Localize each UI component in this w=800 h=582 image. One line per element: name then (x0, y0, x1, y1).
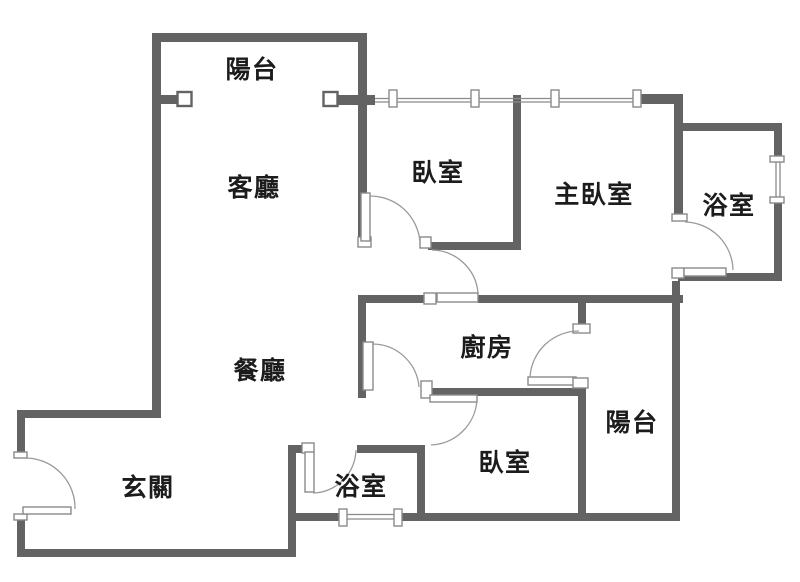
railing-post-icon (178, 92, 192, 106)
door-leaf-icon (363, 342, 373, 390)
door-swing-arc-icon (372, 344, 419, 387)
window-bathroom-bottom (339, 509, 402, 526)
door-leaf-icon (305, 452, 314, 492)
window-mullion-icon (770, 197, 784, 203)
door-swing-arc-icon (432, 250, 478, 293)
door-swing-arc-icon (27, 458, 75, 509)
wall (402, 513, 680, 521)
window-top-band (375, 90, 641, 107)
room-label-bathroom-bottom: 浴室 (334, 472, 387, 501)
door-jamb-icon (14, 514, 27, 520)
door-front-entrance (14, 452, 75, 520)
room-label-bathroom-top: 浴室 (702, 191, 755, 220)
wall (774, 199, 782, 281)
door-corridor (424, 250, 478, 304)
door-leaf-icon (23, 507, 71, 514)
wall (338, 95, 375, 105)
floorplan-canvas: 陽台 客廳 臥室 主臥室 浴室 餐廳 廚房 陽台 臥室 浴室 玄關 (0, 0, 800, 582)
door-bedroom-bottom (430, 395, 477, 445)
wall (674, 94, 683, 219)
door-jamb-icon (14, 452, 27, 458)
wall (428, 242, 521, 250)
wall (417, 445, 425, 521)
wall (513, 95, 521, 250)
wall (357, 445, 417, 453)
wall (152, 33, 161, 418)
door-swing-arc-icon (370, 196, 420, 242)
room-label-bedroom-bottom: 臥室 (478, 448, 531, 477)
wall (578, 388, 586, 521)
door-jamb-icon (420, 237, 431, 248)
wall (152, 33, 367, 42)
room-label-foyer: 玄關 (121, 473, 174, 502)
wall (288, 445, 296, 557)
door-jamb-icon (424, 293, 436, 304)
wall (672, 281, 680, 521)
room-label-balcony-rear: 陽台 (605, 408, 658, 437)
door-bedroom-top (358, 193, 431, 248)
door-jamb-icon (672, 214, 687, 221)
door-jamb-icon (672, 268, 684, 278)
window-mullion-icon (471, 90, 479, 107)
balcony-railing (178, 92, 338, 106)
window-bathroom-top (770, 156, 784, 203)
window-mullion-icon (339, 509, 347, 526)
door-leaf-icon (528, 377, 576, 385)
room-label-bedroom-top: 臥室 (411, 158, 464, 187)
door-leaf-icon (361, 193, 370, 241)
wall (774, 123, 782, 159)
door-swing-arc-icon (530, 331, 579, 377)
room-label-kitchen: 廚房 (460, 333, 513, 362)
window-mullion-icon (770, 156, 784, 162)
door-bathroom-top (672, 214, 733, 278)
window-mullion-icon (389, 90, 397, 107)
floorplan-drawing: 陽台 客廳 臥室 主臥室 浴室 餐廳 廚房 陽台 臥室 浴室 玄關 (0, 0, 800, 582)
window-mullion-icon (633, 90, 641, 107)
room-label-balcony-top: 陽台 (225, 55, 278, 84)
room-label-dining-room: 餐廳 (233, 356, 286, 385)
door-leaf-icon (430, 395, 477, 402)
room-labels: 陽台 客廳 臥室 主臥室 浴室 餐廳 廚房 陽台 臥室 浴室 玄關 (121, 55, 755, 502)
wall (17, 410, 25, 457)
door-swing-arc-icon (431, 399, 477, 445)
door-jamb-icon (573, 378, 588, 388)
wall (578, 295, 586, 327)
room-label-living-room: 客廳 (227, 173, 280, 202)
wall (683, 123, 782, 131)
wall (358, 295, 425, 303)
door-leaf-icon (684, 268, 726, 276)
door-kitchen (363, 342, 432, 398)
door-swing-arc-icon (685, 222, 733, 270)
wall (18, 549, 296, 557)
room-label-master-bedroom: 主臥室 (554, 180, 634, 209)
door-leaf-icon (437, 293, 478, 302)
window-mullion-icon (394, 509, 402, 526)
wall (152, 95, 177, 104)
window-mullion-icon (551, 90, 559, 107)
door-rear-balcony (528, 324, 590, 388)
railing-post-icon (324, 92, 338, 106)
wall (18, 410, 161, 418)
